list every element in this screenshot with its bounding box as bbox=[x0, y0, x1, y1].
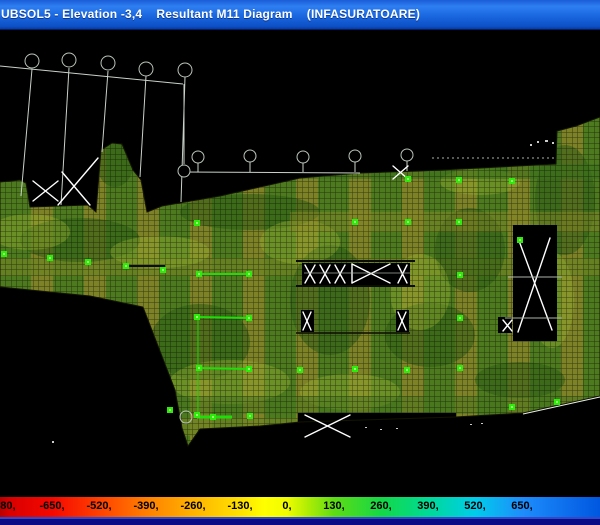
grid-bubble-icon bbox=[401, 149, 413, 161]
legend-tick-label: -520, bbox=[86, 500, 111, 512]
application-window: UBSOL5 - Elevation -3,4 Resultant M11 Di… bbox=[0, 0, 600, 525]
grid-bubble-icon bbox=[349, 150, 361, 162]
model-canvas[interactable] bbox=[0, 30, 600, 497]
legend-tick-label: 0, bbox=[282, 500, 291, 512]
grid-bubble-icon bbox=[192, 151, 204, 163]
legend-tick-label: 650, bbox=[511, 500, 532, 512]
legend-tick-label: -650, bbox=[39, 500, 64, 512]
legend-tick-label: 260, bbox=[370, 500, 391, 512]
grid-bubble-icon bbox=[25, 54, 39, 68]
window-edge-strip bbox=[0, 517, 600, 525]
grid-bubble-icon bbox=[178, 63, 192, 77]
legend-tick-label: 520, bbox=[464, 500, 485, 512]
grid-bubble-icon bbox=[297, 151, 309, 163]
legend-tick-label: -130, bbox=[227, 500, 252, 512]
grid-bubble-icon bbox=[62, 53, 76, 67]
grid-bubble-icon bbox=[101, 56, 115, 70]
elevation-drawing[interactable] bbox=[0, 30, 600, 497]
grid-bubble-icon bbox=[178, 165, 190, 177]
window-title: UBSOL5 - Elevation -3,4 Resultant M11 Di… bbox=[1, 7, 420, 21]
legend-tick-label: -260, bbox=[180, 500, 205, 512]
grid-bubble-icon bbox=[244, 150, 256, 162]
title-bar[interactable]: UBSOL5 - Elevation -3,4 Resultant M11 Di… bbox=[0, 0, 600, 30]
grid-bubble-icon bbox=[139, 62, 153, 76]
legend-tick-label: 390, bbox=[417, 500, 438, 512]
contour-legend: -780, -650, -520, -390, -260, -130, 0, 1… bbox=[0, 497, 600, 517]
legend-tick-label: 130, bbox=[323, 500, 344, 512]
legend-tick-label: -780, bbox=[0, 500, 16, 512]
legend-tick-label: -390, bbox=[133, 500, 158, 512]
